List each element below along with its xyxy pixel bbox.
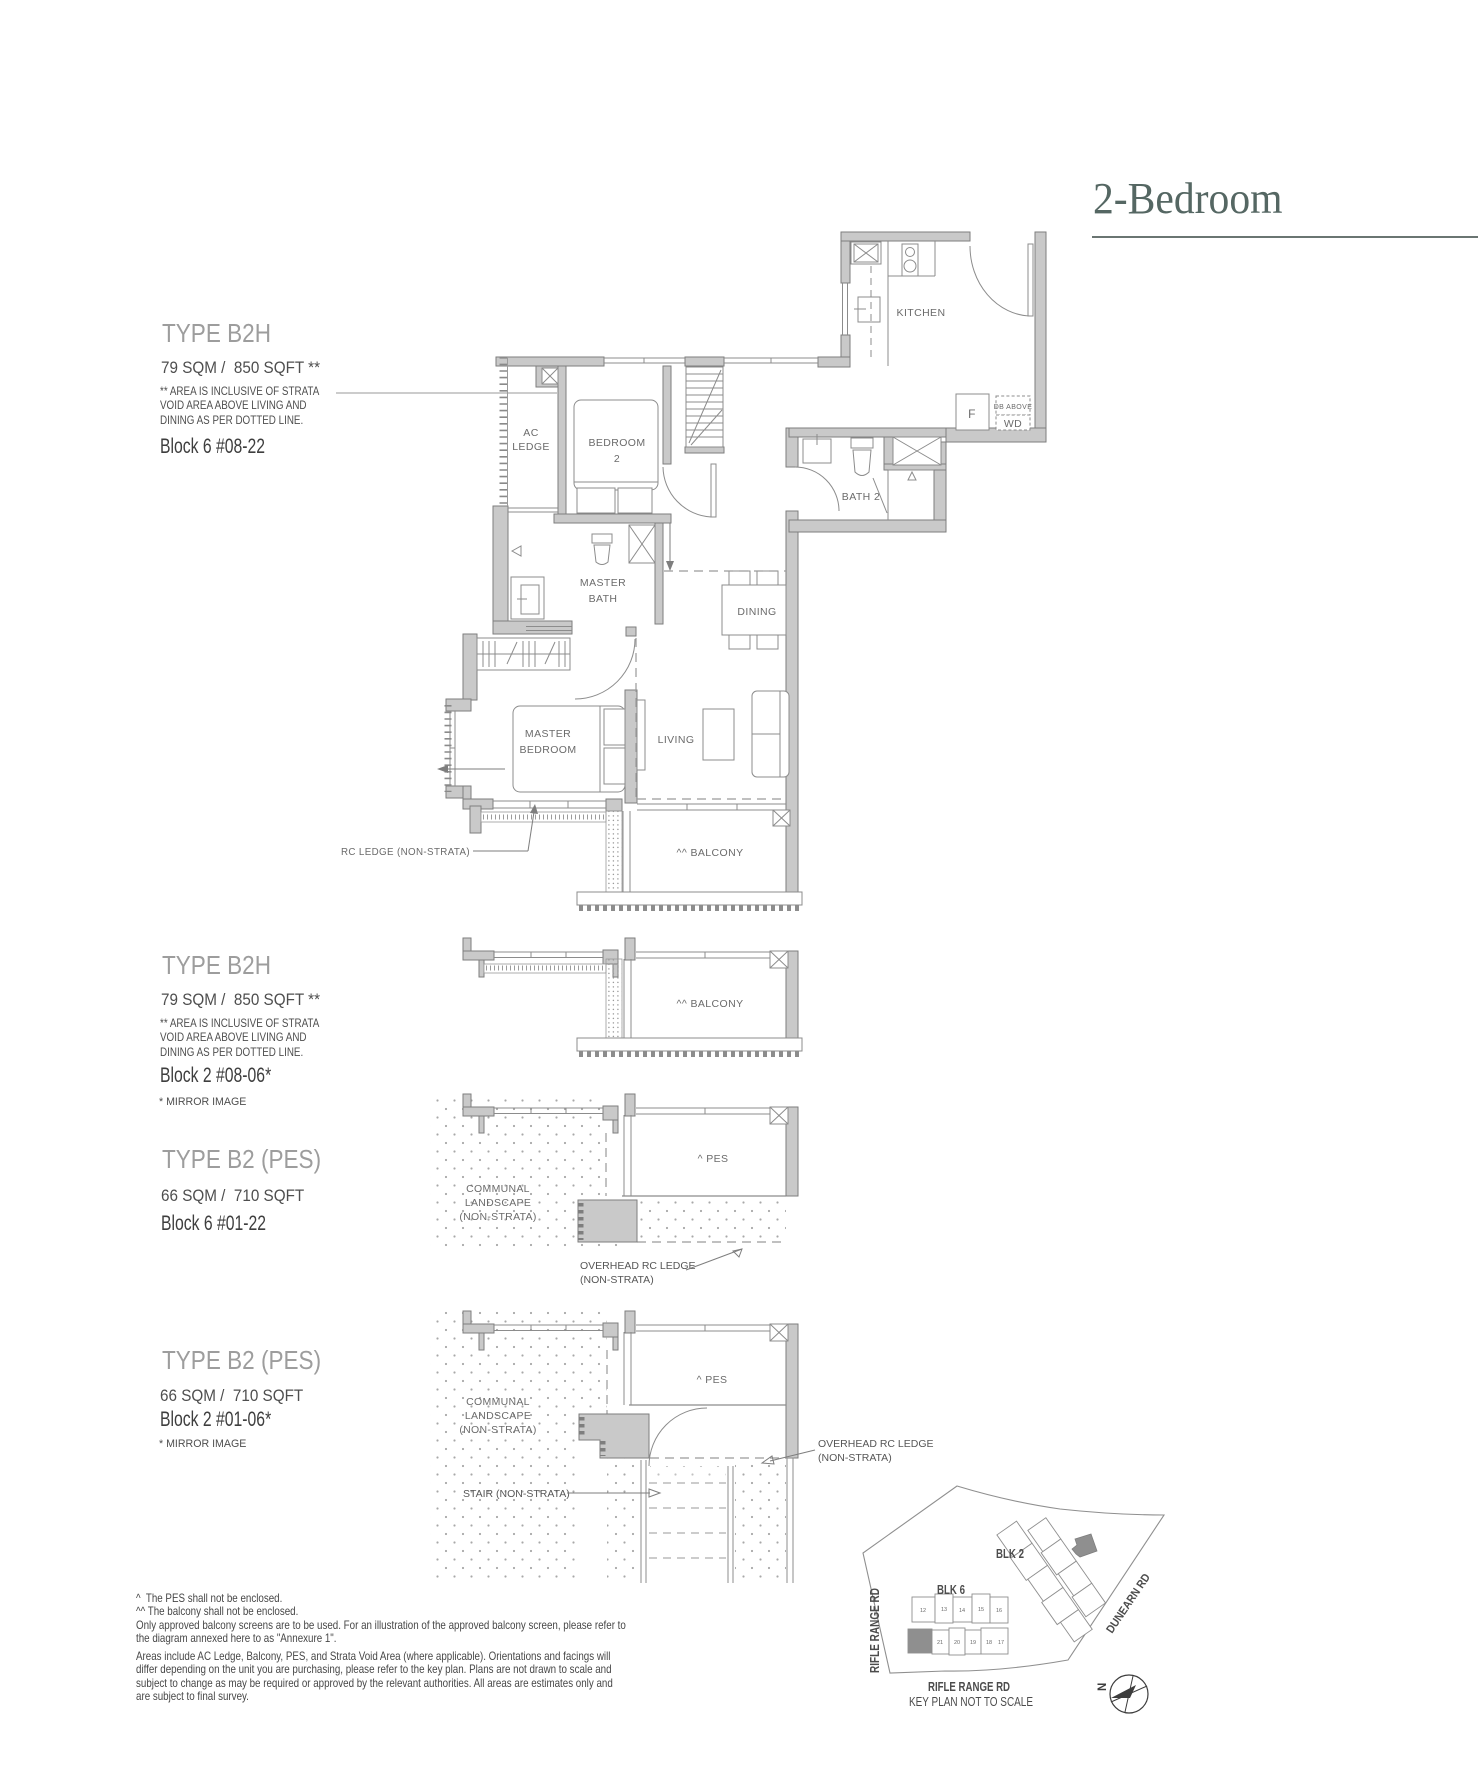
svg-text:BLK 2: BLK 2 xyxy=(996,1547,1024,1561)
svg-text:BLK 6: BLK 6 xyxy=(937,1583,965,1597)
svg-text:17: 17 xyxy=(998,1640,1004,1646)
svg-text:BATH 2: BATH 2 xyxy=(842,491,880,503)
svg-text:^^ BALCONY: ^^ BALCONY xyxy=(677,847,744,859)
svg-text:21: 21 xyxy=(937,1640,943,1646)
svg-text:13: 13 xyxy=(941,1607,947,1613)
svg-text:18: 18 xyxy=(986,1640,992,1646)
svg-text:15: 15 xyxy=(978,1607,984,1613)
svg-text:DINING: DINING xyxy=(737,606,776,618)
svg-text:BATH: BATH xyxy=(589,593,618,605)
svg-text:LIVING: LIVING xyxy=(658,734,695,746)
svg-text:16: 16 xyxy=(996,1608,1002,1614)
svg-text:(NON-STRATA): (NON-STRATA) xyxy=(459,1424,536,1436)
svg-text:^ PES: ^ PES xyxy=(697,1374,728,1386)
svg-text:(NON-STRATA): (NON-STRATA) xyxy=(818,1452,892,1464)
svg-text:(NON-STRATA): (NON-STRATA) xyxy=(459,1211,536,1223)
svg-text:2: 2 xyxy=(614,453,620,465)
svg-text:19: 19 xyxy=(970,1640,976,1646)
svg-text:12: 12 xyxy=(920,1608,926,1614)
svg-text:DUNEARN RD: DUNEARN RD xyxy=(1105,1572,1154,1636)
svg-text:COMMUNAL: COMMUNAL xyxy=(466,1183,530,1195)
svg-text:WD: WD xyxy=(1004,418,1022,430)
svg-text:(NON-STRATA): (NON-STRATA) xyxy=(580,1274,654,1286)
svg-text:^^ BALCONY: ^^ BALCONY xyxy=(677,998,744,1010)
svg-text:LANDSCAPE: LANDSCAPE xyxy=(465,1197,531,1209)
svg-text:KEY PLAN NOT TO SCALE: KEY PLAN NOT TO SCALE xyxy=(909,1695,1033,1709)
svg-text:20: 20 xyxy=(954,1640,960,1646)
svg-text:OVERHEAD RC LEDGE: OVERHEAD RC LEDGE xyxy=(818,1438,934,1450)
svg-text:LEDGE: LEDGE xyxy=(512,441,550,453)
svg-text:^ PES: ^ PES xyxy=(698,1153,729,1165)
svg-text:BEDROOM: BEDROOM xyxy=(588,437,645,449)
svg-text:14: 14 xyxy=(959,1608,965,1614)
svg-text:STAIR (NON-STRATA): STAIR (NON-STRATA) xyxy=(463,1488,570,1500)
svg-text:MASTER: MASTER xyxy=(525,728,571,740)
svg-text:N: N xyxy=(1097,1683,1109,1691)
svg-text:KITCHEN: KITCHEN xyxy=(897,307,946,319)
svg-text:LANDSCAPE: LANDSCAPE xyxy=(465,1410,531,1422)
svg-text:BEDROOM: BEDROOM xyxy=(519,744,576,756)
svg-text:RIFLE RANGE RD: RIFLE RANGE RD xyxy=(868,1588,882,1673)
svg-text:RIFLE RANGE RD: RIFLE RANGE RD xyxy=(928,1679,1010,1694)
svg-text:AC: AC xyxy=(523,427,538,439)
svg-text:OVERHEAD RC LEDGE: OVERHEAD RC LEDGE xyxy=(580,1260,696,1272)
svg-text:MASTER: MASTER xyxy=(580,577,626,589)
svg-text:COMMUNAL: COMMUNAL xyxy=(466,1396,530,1408)
svg-text:F: F xyxy=(968,407,976,421)
svg-text:RC LEDGE (NON-STRATA): RC LEDGE (NON-STRATA) xyxy=(341,846,470,858)
svg-text:DB ABOVE: DB ABOVE xyxy=(994,404,1033,411)
